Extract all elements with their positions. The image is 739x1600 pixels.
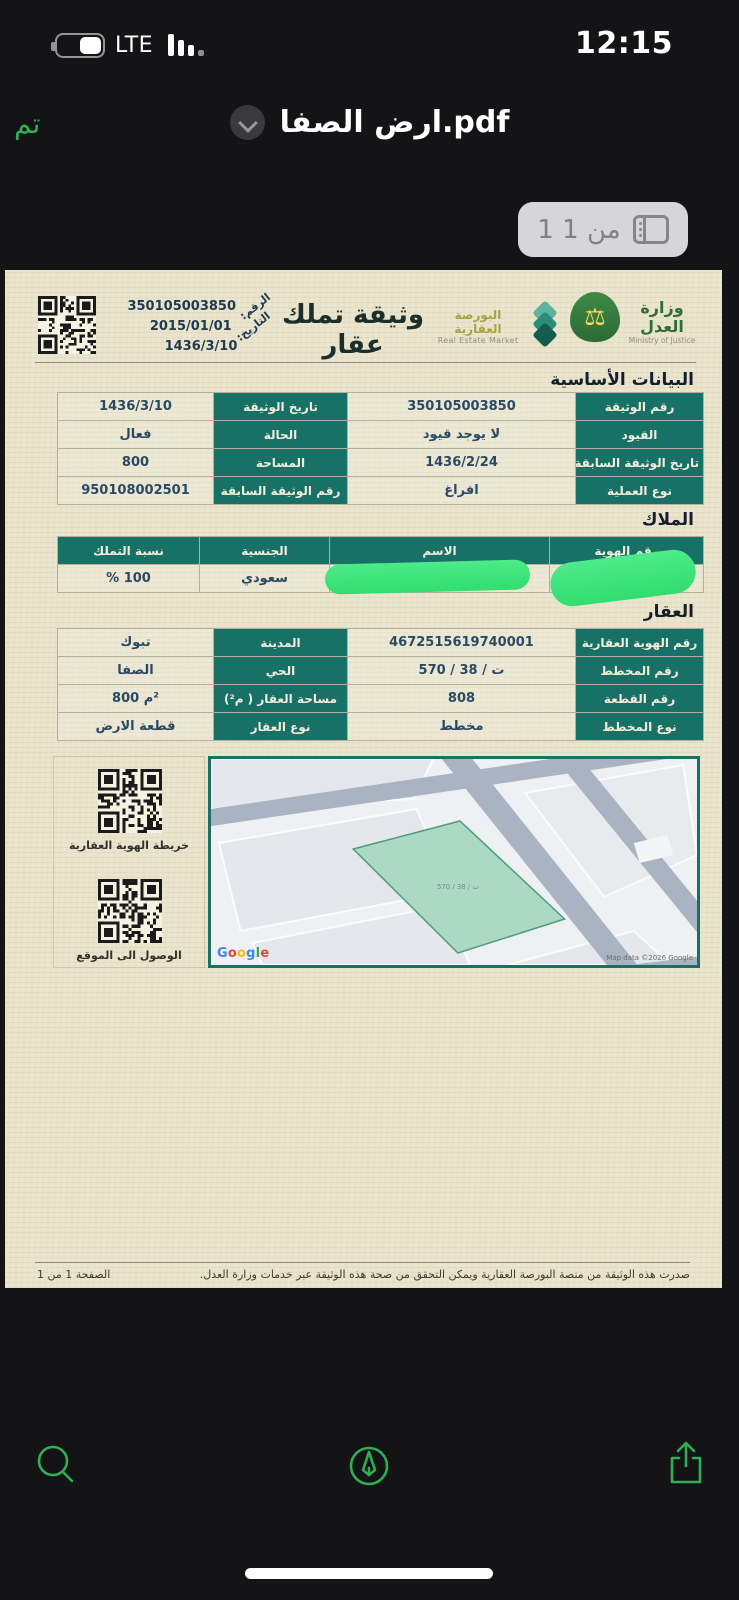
header-divider [35, 362, 696, 363]
document-heading: وثيقة تملك عقار [271, 300, 435, 360]
page-thumbnails-icon [633, 215, 669, 244]
label-cell: الحالة [214, 421, 348, 449]
label-cell: القيود [576, 421, 704, 449]
table-row: رقم الوثيقة 350105003850 تاريخ الوثيقة 1… [58, 393, 704, 421]
value-cell: 950108002501 [58, 477, 214, 505]
moj-logo-english: Ministry of Justice [624, 336, 700, 345]
label-cell: الحي [214, 657, 348, 685]
value-cell: مخطط [348, 713, 576, 741]
page-indicator-pill[interactable]: 1 من 1 [518, 202, 688, 257]
label-cell: رقم الهوية العقارية [576, 629, 704, 657]
basic-section-title: البيانات الأساسية [550, 370, 694, 390]
label-cell: نوع المخطط [576, 713, 704, 741]
value-cell: 808 [348, 685, 576, 713]
pdf-page: الرقم:350105003850 التاريخ:2015/01/01 14… [5, 270, 722, 1288]
network-type-label: LTE [115, 33, 153, 58]
label-cell: رقم الوثيقة السابقة [214, 477, 348, 505]
label-cell: مساحة العقار ( م²) [214, 685, 348, 713]
status-bar: LTE 12:15 [0, 0, 739, 90]
owner-share-cell: % 100 [58, 565, 200, 593]
moj-crest-icon: ⚖ [570, 292, 620, 342]
chevron-down-icon[interactable] [230, 105, 265, 140]
document-reference-block: الرقم:350105003850 التاريخ:2015/01/01 14… [101, 297, 273, 357]
clock-time: 12:15 [575, 26, 673, 61]
ministry-of-justice-logo: وزارة العدل Ministry of Justice ⚖ [570, 290, 702, 350]
table-row: رقم القطعة 808 مساحة العقار ( م²) 800 م² [58, 685, 704, 713]
footer-divider [35, 1262, 690, 1263]
table-row: رقم المخطط 570 / 38 / ت الحي الصفا [58, 657, 704, 685]
iphone-screen: LTE 12:15 تم ارض الصفا.pdf 1 من 1 الرقم:… [0, 0, 739, 1600]
label-cell: المساحة [214, 449, 348, 477]
bottom-toolbar [0, 1430, 739, 1520]
google-logo: Google [217, 946, 269, 961]
value-cell: 1436/2/24 [348, 449, 576, 477]
label-cell: رقم المخطط [576, 657, 704, 685]
search-icon[interactable] [28, 1438, 84, 1494]
real-estate-market-diamond-icon [525, 304, 565, 348]
home-indicator[interactable] [245, 1568, 493, 1579]
value-cell: الصفا [58, 657, 214, 685]
qr-code [98, 879, 162, 943]
table-row: نوع العملية افراغ رقم الوثيقة السابقة 95… [58, 477, 704, 505]
map-graphic: ت / 38 / 570 [211, 759, 697, 965]
label-cell: تاريخ الوثيقة [214, 393, 348, 421]
qr-panel: خريطة الهوية العقارية الوصول الى الموقع [53, 756, 205, 968]
table-row: رقم الهوية العقارية 4672515619740001 الم… [58, 629, 704, 657]
table-row: تاريخ الوثيقة السابقة 1436/2/24 المساحة … [58, 449, 704, 477]
table-row: نوع المخطط مخطط نوع العقار قطعة الارض [58, 713, 704, 741]
footer-page-number: الصفحة 1 من 1 [37, 1268, 110, 1281]
label-cell: المدينة [214, 629, 348, 657]
label-cell: نوع العملية [576, 477, 704, 505]
basic-data-table: رقم الوثيقة 350105003850 تاريخ الوثيقة 1… [57, 392, 704, 505]
qr-location-label: الوصول الى الموقع [54, 949, 204, 962]
value-cell: 1436/3/10 [58, 393, 214, 421]
property-section-title: العقار [644, 602, 694, 622]
date-value: 2015/01/01 [150, 319, 232, 334]
value-cell: افراغ [348, 477, 576, 505]
label-cell: تاريخ الوثيقة السابقة [576, 449, 704, 477]
owners-section-title: الملاك [642, 510, 694, 530]
footer-note: صدرت هذه الوثيقة من منصة البورصة العقاري… [200, 1268, 690, 1281]
document-title: ارض الصفا.pdf [280, 105, 510, 140]
value-cell: 350105003850 [348, 393, 576, 421]
value-cell: 800 م² [58, 685, 214, 713]
qr-code [98, 769, 162, 833]
map-attribution: Map data ©2026 Google [606, 954, 693, 962]
real-estate-market-logo: البورصة العقارية Real Estate Market [435, 302, 565, 352]
column-header: الجنسية [200, 537, 330, 565]
property-table: رقم الهوية العقارية 4672515619740001 الم… [57, 628, 704, 741]
share-icon[interactable] [658, 1436, 714, 1492]
label-cell: رقم الوثيقة [576, 393, 704, 421]
value-cell: 570 / 38 / ت [348, 657, 576, 685]
qr-code [38, 296, 96, 354]
value-cell: لا يوجد قيود [348, 421, 576, 449]
redaction-scribble [325, 559, 531, 594]
number-value: 350105003850 [127, 299, 236, 314]
value-cell: قطعة الارض [58, 713, 214, 741]
value-cell: 800 [58, 449, 214, 477]
owner-nationality-cell: سعودي [200, 565, 330, 593]
qr-map-label: خريطة الهوية العقارية [54, 839, 204, 852]
value-cell: تبوك [58, 629, 214, 657]
rem-logo-arabic: البورصة العقارية [437, 308, 519, 336]
value-cell: 4672515619740001 [348, 629, 576, 657]
nav-bar: تم ارض الصفا.pdf [0, 95, 739, 165]
battery-icon [55, 33, 105, 58]
table-row: القيود لا يوجد قيود الحالة فعال [58, 421, 704, 449]
parcel-map: ت / 38 / 570 Google Map data ©2026 Googl… [208, 756, 700, 968]
page-indicator-label: 1 من 1 [537, 215, 620, 245]
parcel-label: ت / 38 / 570 [437, 883, 479, 891]
label-cell: نوع العقار [214, 713, 348, 741]
rem-logo-english: Real Estate Market [437, 336, 519, 345]
signal-bars-icon [168, 34, 210, 56]
value-cell: فعال [58, 421, 214, 449]
moj-logo-arabic: وزارة العدل [624, 298, 700, 336]
column-header: نسبة التملك [58, 537, 200, 565]
markup-pen-icon[interactable] [341, 1438, 397, 1494]
label-cell: رقم القطعة [576, 685, 704, 713]
